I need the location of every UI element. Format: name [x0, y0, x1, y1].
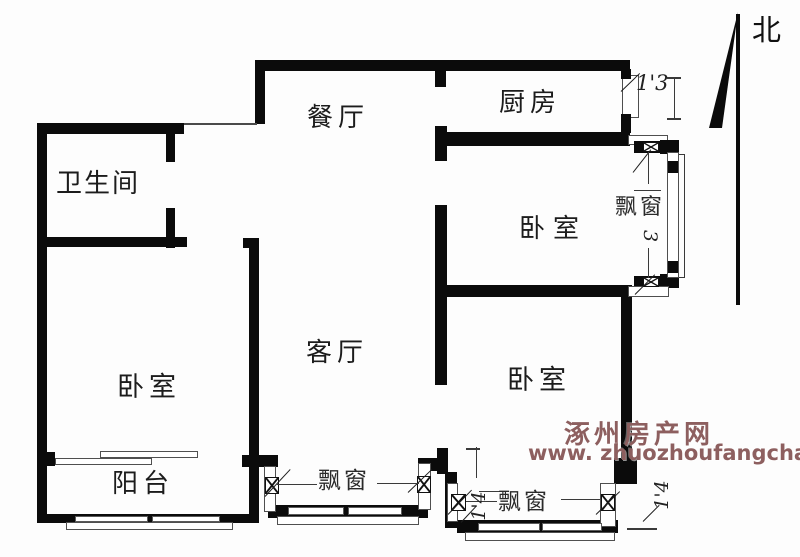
east-bay-sill-bottom — [628, 286, 669, 297]
bay-label-leader-left — [277, 484, 317, 485]
wall-bathroom-east-upper — [166, 134, 175, 162]
bay-label-living-south: 飘窗 — [318, 469, 370, 494]
east-bay-mullion-bottom — [668, 261, 678, 273]
wall-balcony-west-stub — [42, 452, 55, 466]
dim-line-kitchen-window — [674, 78, 675, 120]
dim-line-east-bay-lower — [648, 248, 649, 278]
balcony-outer-sill — [66, 522, 233, 530]
se-bay-outer-sill — [465, 532, 615, 541]
bay-label-east: 飘窗 — [615, 196, 665, 220]
opening-line-hall — [183, 123, 257, 125]
wall-bedrooms-divider — [435, 285, 632, 297]
dim-line-se-bay-left — [476, 447, 477, 478]
dim-text-east-bay: 3 — [639, 226, 659, 246]
room-label-bedroom-ne: 卧室 — [519, 215, 587, 244]
bay-label-leader-right — [377, 483, 419, 484]
wall-bathroom-north — [37, 123, 184, 134]
dim-text-se-bay-right: 1'4 — [653, 473, 673, 517]
balcony-slider-panel-b — [55, 458, 152, 465]
bay-label-bedroom-south: 飘窗 — [498, 490, 550, 515]
se-bay-pane-right — [542, 523, 602, 531]
living-bay-pane-right — [348, 507, 402, 515]
wall-kitchen-west-stub — [435, 60, 446, 87]
dim-tick — [634, 190, 661, 191]
floorplan-canvas: 北 卫生间 餐厅 厨房 卧室 客厅 卧室 卧室 阳台 飘窗 飘窗 飘窗 1'3 … — [0, 0, 800, 557]
kitchen-window-cap-top — [621, 69, 631, 79]
living-bay-outer-sill — [277, 516, 419, 525]
east-bay-outer-line — [684, 154, 685, 278]
window-cross-icon — [265, 477, 279, 494]
dim-text-se-bay-left: 1'4 — [470, 484, 490, 528]
room-label-bedroom-sw: 卧室 — [117, 373, 181, 403]
room-label-balcony: 阳台 — [112, 470, 174, 499]
wall-dining-west — [255, 60, 265, 124]
window-cross-icon — [643, 142, 659, 152]
dim-line-east-bay-upper — [648, 152, 649, 184]
east-bay-mullion-top — [668, 161, 678, 173]
east-bay-outer-tick-bottom — [679, 277, 685, 278]
north-arrow-icon — [703, 8, 767, 308]
watermark-site-url: www. zhuozhoufangchan. com — [528, 441, 800, 465]
dim-text-kitchen-window: 1'3 — [636, 73, 669, 94]
east-bay-outer-tick-top — [679, 154, 685, 155]
dim-tick — [667, 118, 681, 120]
wall-kitchen-south — [446, 132, 630, 146]
living-bay-pane-left — [288, 507, 344, 515]
room-label-dining: 餐厅 — [307, 104, 369, 133]
room-label-living: 客厅 — [306, 339, 368, 368]
balcony-slider-panel-a — [100, 451, 198, 458]
room-label-bathroom: 卫生间 — [56, 170, 140, 199]
room-label-bedroom-se: 卧室 — [507, 366, 571, 396]
dim-tick — [466, 448, 480, 450]
room-label-kitchen: 厨房 — [499, 89, 561, 118]
wall-bedroom-sw-east — [249, 238, 259, 523]
window-cross-icon — [417, 476, 431, 493]
dim-line-se-bay-right — [627, 528, 657, 530]
kitchen-window-cap-bottom — [621, 114, 631, 133]
bay-label-leader-right — [561, 499, 600, 500]
north-label: 北 — [752, 16, 781, 45]
dim-tick — [667, 77, 681, 79]
wall-bathroom-south — [37, 237, 187, 247]
